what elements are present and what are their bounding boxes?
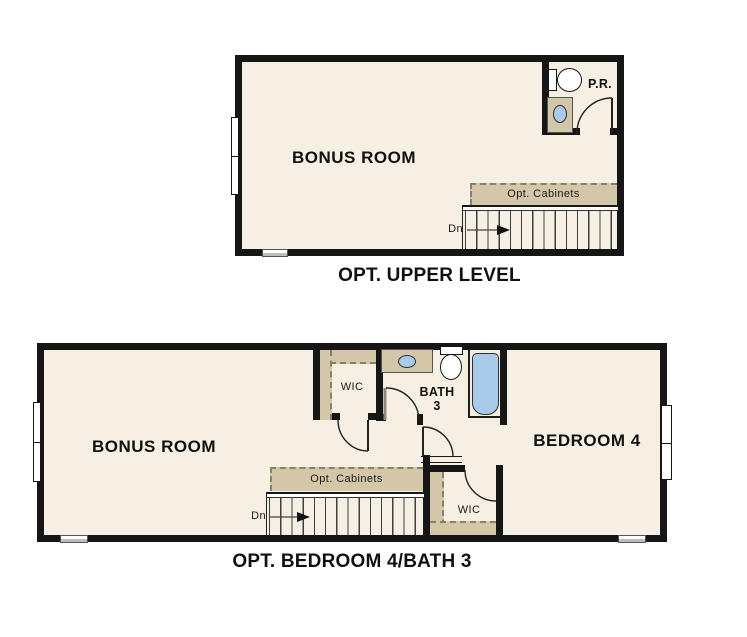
lower-plan-caption: OPT. BEDROOM 4/BATH 3 bbox=[37, 551, 667, 573]
bedroom4-label: BEDROOM 4 bbox=[477, 431, 697, 451]
bedroom4-bath3-plan: WIC BATH 3 WIC Opt. Cabinets Dn bbox=[0, 0, 747, 637]
wic2-shelf-bottom bbox=[430, 521, 496, 535]
bonus-room-label-2: BONUS ROOM bbox=[44, 437, 264, 457]
bath-sink-basin bbox=[398, 355, 416, 368]
wic2-right-wall bbox=[496, 465, 503, 535]
bath-bottom-wall-stub bbox=[417, 414, 423, 425]
wic1-left-wall bbox=[313, 350, 320, 420]
bath-bottom-wall-left bbox=[376, 414, 386, 421]
tub-foot-wall bbox=[470, 416, 500, 418]
staircase-2 bbox=[266, 492, 423, 535]
bottom-right-window-2 bbox=[618, 535, 646, 543]
stairs-dn-label-2: Dn bbox=[224, 510, 266, 522]
stair-treads-2 bbox=[269, 498, 424, 535]
bedroom-left-wall bbox=[500, 350, 507, 425]
bath3-label-line2: 3 bbox=[407, 399, 467, 413]
bath3-label-line1: BATH bbox=[407, 385, 467, 399]
floorplan-canvas: Opt. Cabinets Dn BONUS ROOM P.R. OPT. UP… bbox=[0, 0, 747, 637]
opt-cabinets-label-2: Opt. Cabinets bbox=[270, 473, 423, 485]
bottom-left-window-2 bbox=[60, 535, 88, 543]
wic2-top-wall bbox=[423, 465, 465, 472]
wic2-label: WIC bbox=[439, 504, 499, 516]
wic1-label: WIC bbox=[322, 381, 382, 393]
bathtub bbox=[472, 353, 499, 415]
left-window-2 bbox=[33, 402, 41, 482]
bath-toilet-bowl bbox=[440, 354, 462, 380]
tub-divider-wall bbox=[468, 350, 470, 418]
